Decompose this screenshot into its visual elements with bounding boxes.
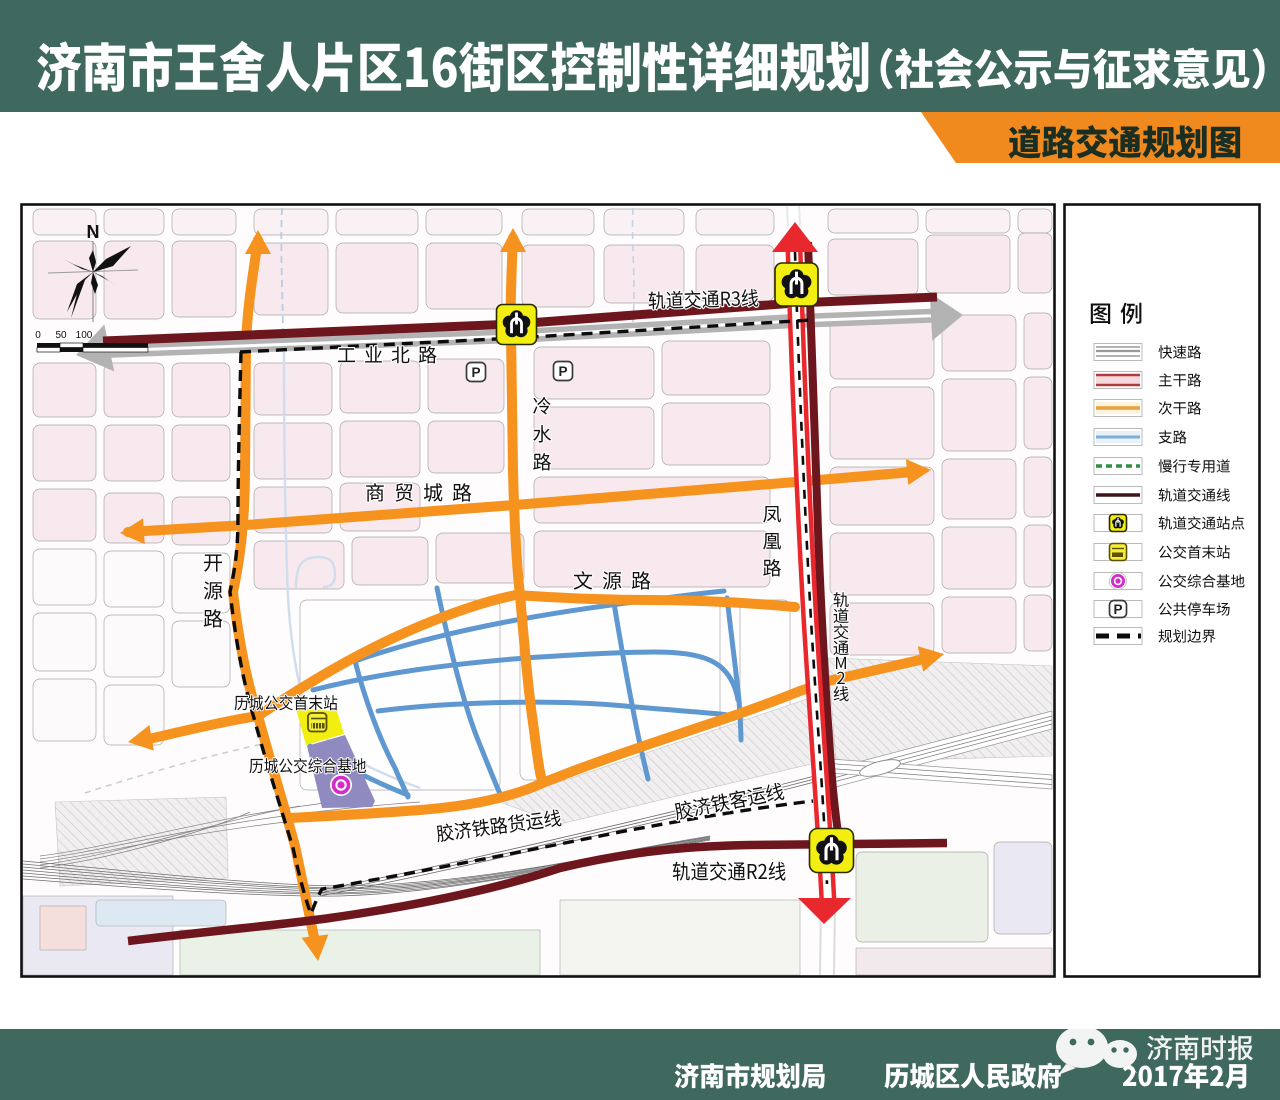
svg-text:N: N	[87, 222, 100, 242]
svg-text:100: 100	[76, 330, 93, 341]
svg-text:P: P	[471, 365, 480, 380]
svg-text:P: P	[1113, 602, 1122, 617]
svg-text:50: 50	[55, 330, 67, 341]
svg-text:0: 0	[35, 330, 41, 341]
svg-text:P: P	[558, 364, 567, 379]
